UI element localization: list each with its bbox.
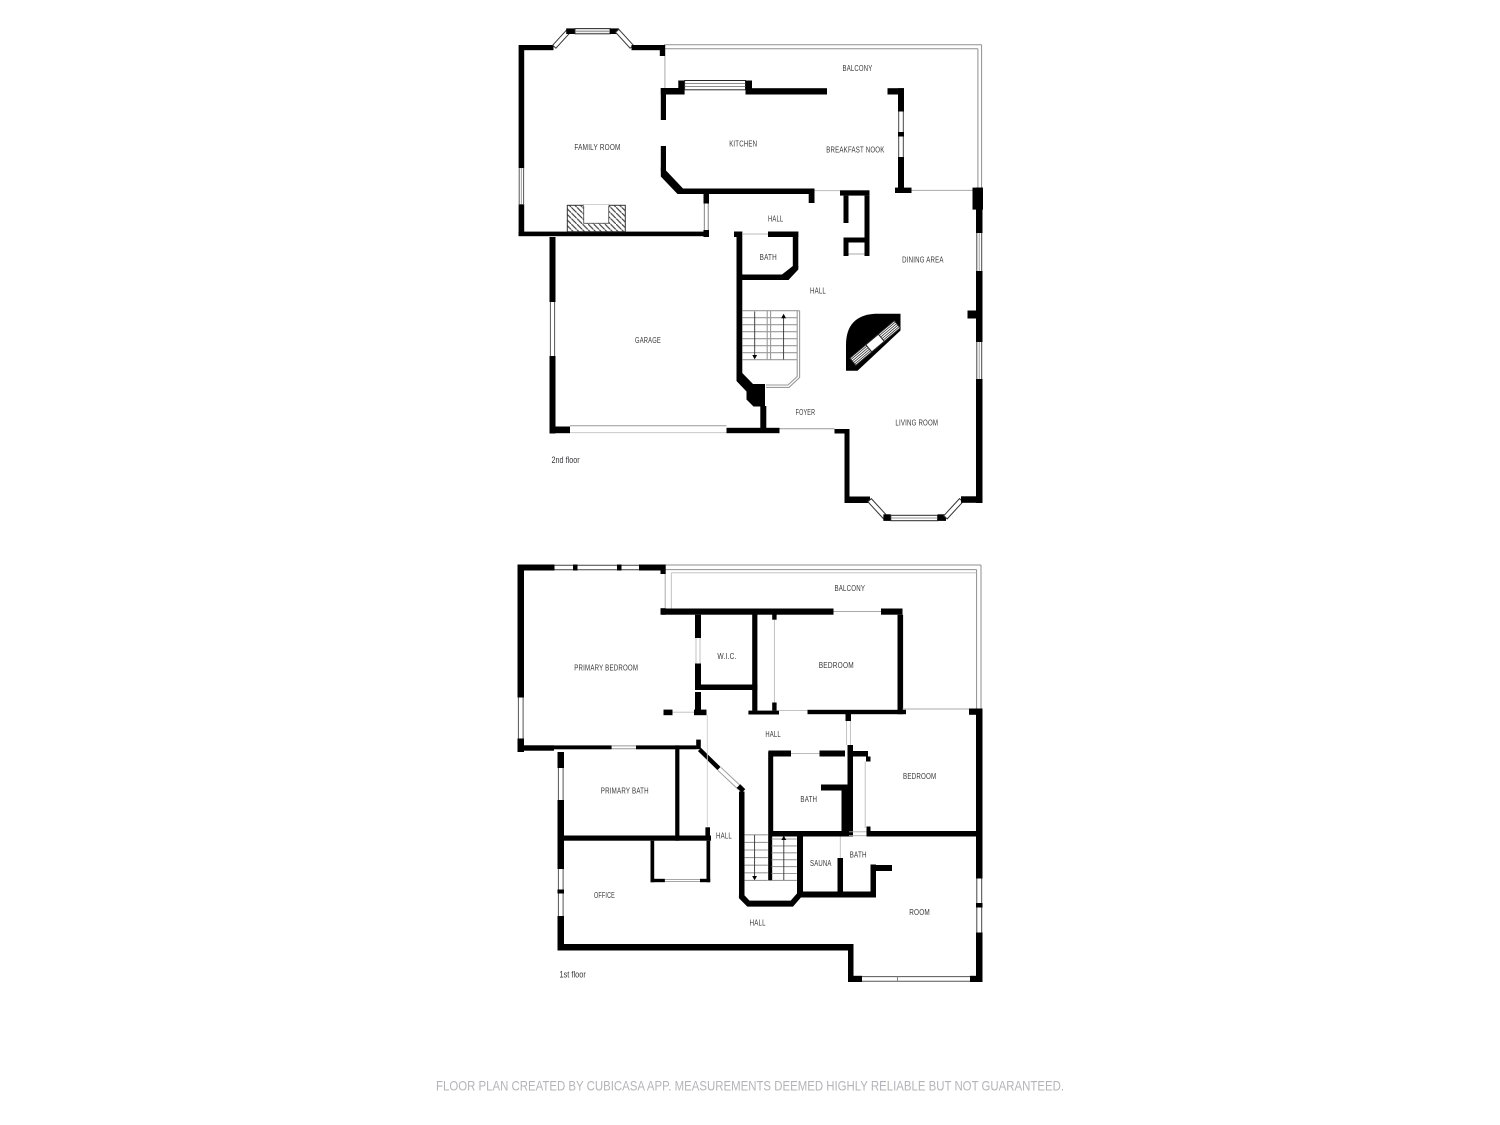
svg-text:ROOM: ROOM [909,908,930,917]
svg-text:2nd floor: 2nd floor [552,455,580,465]
svg-text:BEDROOM: BEDROOM [819,661,854,670]
svg-text:OFFICE: OFFICE [594,891,615,900]
svg-text:HALL: HALL [765,730,781,739]
svg-text:BATH: BATH [760,253,777,262]
svg-text:PRIMARY BEDROOM: PRIMARY BEDROOM [574,664,638,673]
svg-text:BATH: BATH [850,851,867,860]
svg-text:HALL: HALL [810,287,826,296]
svg-text:PRIMARY BATH: PRIMARY BATH [601,787,649,796]
svg-text:DINING AREA: DINING AREA [902,256,944,265]
svg-text:KITCHEN: KITCHEN [729,139,757,148]
svg-text:W.I.C.: W.I.C. [717,652,736,661]
svg-text:GARAGE: GARAGE [635,336,661,345]
svg-text:HALL: HALL [716,831,732,840]
svg-text:BREAKFAST NOOK: BREAKFAST NOOK [826,145,885,154]
svg-text:SAUNA: SAUNA [810,859,832,868]
svg-text:BALCONY: BALCONY [843,64,873,73]
svg-text:FAMILY ROOM: FAMILY ROOM [574,143,620,152]
svg-text:FLOOR PLAN CREATED BY CUBICASA: FLOOR PLAN CREATED BY CUBICASA APP. MEAS… [436,1078,1064,1094]
svg-text:BALCONY: BALCONY [835,584,866,593]
svg-text:BEDROOM: BEDROOM [903,772,936,781]
svg-text:1st floor: 1st floor [560,970,586,980]
svg-text:BATH: BATH [800,795,817,804]
svg-text:FOYER: FOYER [796,408,816,417]
svg-text:HALL: HALL [768,215,784,224]
svg-text:HALL: HALL [750,918,766,927]
svg-text:LIVING ROOM: LIVING ROOM [895,419,938,428]
